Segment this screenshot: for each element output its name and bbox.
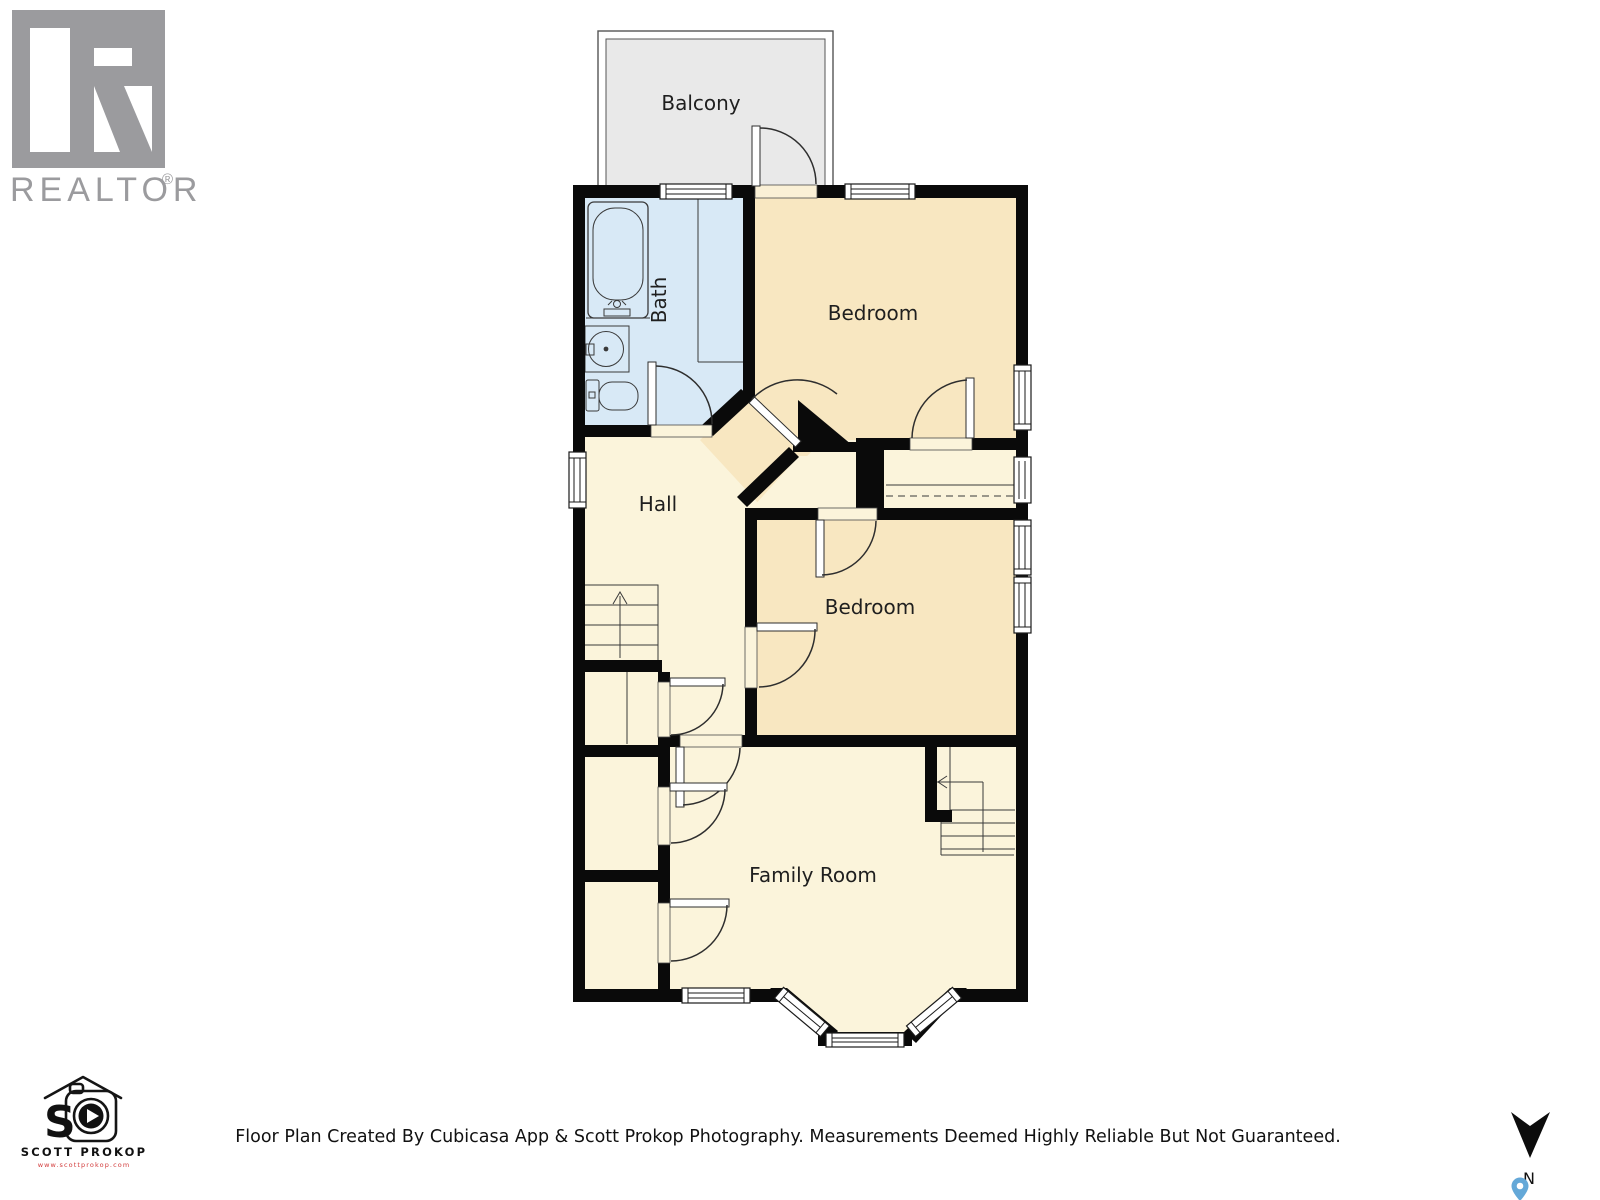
compass: N: [1511, 1112, 1550, 1200]
window: [1014, 457, 1031, 503]
registered-mark: ®: [162, 171, 173, 188]
window: [682, 988, 750, 1003]
sp-initial: S: [44, 1097, 76, 1148]
window: [826, 1033, 904, 1047]
floor-plan-page: REALTOR ®: [0, 0, 1600, 1200]
window: [845, 184, 915, 199]
realtor-logo: REALTOR ®: [10, 10, 202, 209]
room-label-bedroom-2: Bedroom: [825, 595, 915, 619]
room-label-family-room: Family Room: [749, 863, 877, 887]
room-label-hall: Hall: [639, 492, 677, 516]
scott-prokop-logo: S SCOTT PROKOP www.scottprokop.com: [21, 1077, 148, 1169]
window: [569, 452, 586, 508]
room-label-bath: Bath: [647, 277, 671, 324]
room-label-bedroom-1: Bedroom: [828, 301, 918, 325]
closet-rod-room: [884, 450, 1016, 508]
north-arrow-icon: [1511, 1112, 1550, 1158]
room-label-balcony: Balcony: [661, 91, 740, 115]
window: [1014, 577, 1031, 633]
floor-plan-image: REALTOR ®: [0, 0, 1600, 1200]
window: [1014, 365, 1031, 430]
location-pin-icon: [1512, 1178, 1529, 1200]
window: [1014, 520, 1031, 575]
photographer-name: SCOTT PROKOP: [21, 1145, 148, 1159]
footer-disclaimer: Floor Plan Created By Cubicasa App & Sco…: [235, 1127, 1341, 1147]
photographer-website: www.scottprokop.com: [38, 1161, 131, 1169]
window: [660, 184, 732, 199]
realtor-wordmark: REALTOR: [10, 171, 202, 209]
